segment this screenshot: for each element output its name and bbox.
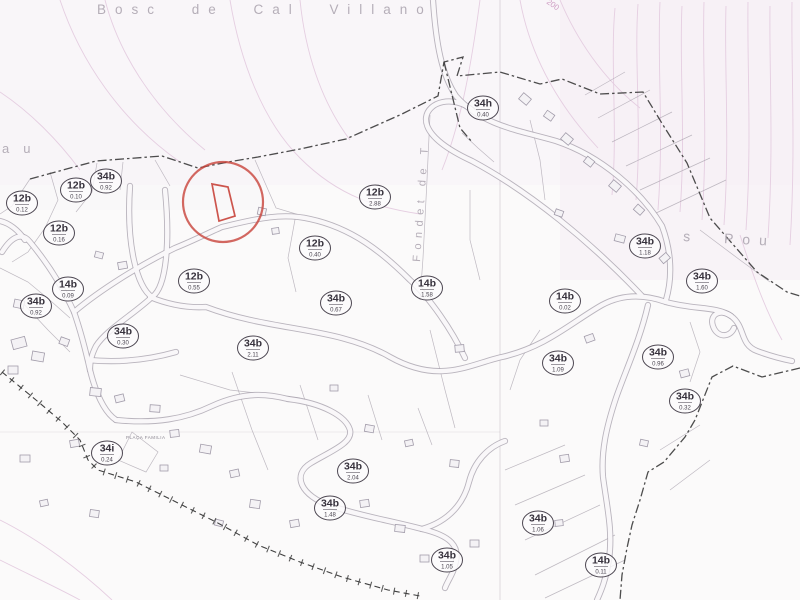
parcel-area: 0.11 [595, 570, 607, 576]
parcel-area: 0.40 [477, 113, 489, 119]
parcel-area: 1.09 [552, 368, 564, 374]
parcel-label: 34b1.60 [687, 269, 718, 293]
parcel-label: 14b0.09 [53, 277, 84, 301]
parcel-label: 12b0.10 [61, 178, 92, 202]
parcel-code: 34b [344, 461, 362, 473]
parcel-code: 34b [676, 391, 694, 403]
parcel-area: 0.09 [62, 294, 74, 300]
parcel-area: 0.12 [16, 208, 28, 214]
parcel-code: 14b [556, 291, 574, 303]
parcel-label: 34b1.09 [543, 351, 574, 375]
parcel-area: 2.88 [369, 202, 381, 208]
parcel-code: 34b [244, 338, 262, 350]
parcel-area: 0.92 [100, 186, 112, 192]
map-canvas: Bosc de Cal Villano au s Pou Fondet de T… [0, 0, 800, 600]
parcel-code: 34b [438, 550, 456, 562]
parcel-label: 34b0.30 [108, 324, 139, 348]
parcel-area: 0.96 [652, 362, 664, 368]
parcel-area: 1.60 [696, 286, 708, 292]
parcel-label: 14b0.02 [550, 289, 581, 313]
parcel-code: 12b [50, 223, 68, 235]
parcel-label: 34b1.48 [315, 496, 346, 520]
parcel-area: 1.18 [639, 251, 651, 257]
parcel-label: 34i0.24 [92, 441, 123, 465]
parcel-area: 2.11 [247, 353, 259, 359]
parcel-code: 34b [321, 498, 339, 510]
parcel-area: 0.55 [188, 286, 200, 292]
parcel-label: 12b0.40 [300, 236, 331, 260]
parcel-code: 34b [27, 296, 45, 308]
parcel-area: 1.48 [324, 513, 336, 519]
parcel-label: 14b0.11 [586, 553, 617, 577]
parcel-label: 34b0.96 [643, 345, 674, 369]
parcel-label: 12b0.12 [7, 191, 38, 215]
parcel-label: 12b0.16 [44, 221, 75, 245]
parcel-code: 12b [366, 187, 384, 199]
parcel-label: 34b1.05 [432, 548, 463, 572]
parcel-area: 0.16 [53, 238, 65, 244]
parcel-code: 14b [592, 555, 610, 567]
parcel-code: 34b [529, 513, 547, 525]
parcel-area: 0.92 [30, 311, 42, 317]
parcel-code: 34b [114, 326, 132, 338]
parcel-code: 34b [549, 353, 567, 365]
parcel-code: 34b [649, 347, 667, 359]
parcel-area: 0.10 [70, 195, 82, 201]
parcel-label: 34b1.06 [523, 511, 554, 535]
parcel-code: 14b [59, 279, 77, 291]
scanned-cadastral-map: Bosc de Cal Villano au s Pou Fondet de T… [0, 0, 800, 600]
parcel-area: 0.02 [559, 306, 571, 312]
boundary-east [620, 366, 800, 600]
parcel-code: 12b [306, 238, 324, 250]
parcel-label: 34h0.40 [468, 96, 499, 120]
parcel-label: 34b2.11 [238, 336, 269, 360]
parcel-area: 1.05 [441, 565, 453, 571]
parcel-code: 34b [97, 171, 115, 183]
parcel-code: 12b [13, 193, 31, 205]
parcel-code: 14b [418, 278, 436, 290]
parcel-code: 34b [327, 293, 345, 305]
parcel-area: 2.04 [347, 476, 359, 482]
parcel-area: 1.58 [421, 293, 433, 299]
parcel-label: 12b2.88 [360, 185, 391, 209]
parcel-code: 34b [636, 236, 654, 248]
parcel-area: 0.32 [679, 406, 691, 412]
parcel-area: 0.40 [309, 253, 321, 259]
parcel-label: 34b1.18 [630, 234, 661, 258]
parcel-code: 12b [67, 180, 85, 192]
parcel-code: 12b [185, 271, 203, 283]
parcel-label: 34b0.92 [91, 169, 122, 193]
parcel-code: 34b [693, 271, 711, 283]
parcel-code: 34h [474, 98, 492, 110]
left-edge-label: au [2, 141, 44, 156]
parcel-label: 34b0.92 [21, 294, 52, 318]
parcel-code: 34i [100, 443, 115, 455]
forest-name-label: Bosc de Cal Villano [97, 2, 433, 17]
parcel-label: 14b1.58 [412, 276, 443, 300]
parcel-label: 34b0.67 [321, 291, 352, 315]
plaza-label: PLAÇA FAMILIA [126, 435, 166, 440]
parcel-area: 0.24 [101, 458, 113, 464]
parcel-label: 34b0.32 [670, 389, 701, 413]
parcel-area: 1.06 [532, 528, 544, 534]
parcel-area: 0.67 [330, 308, 342, 314]
parcel-label: 12b0.55 [179, 269, 210, 293]
parcel-area: 0.30 [117, 341, 129, 347]
parcel-label: 34b2.04 [338, 459, 369, 483]
